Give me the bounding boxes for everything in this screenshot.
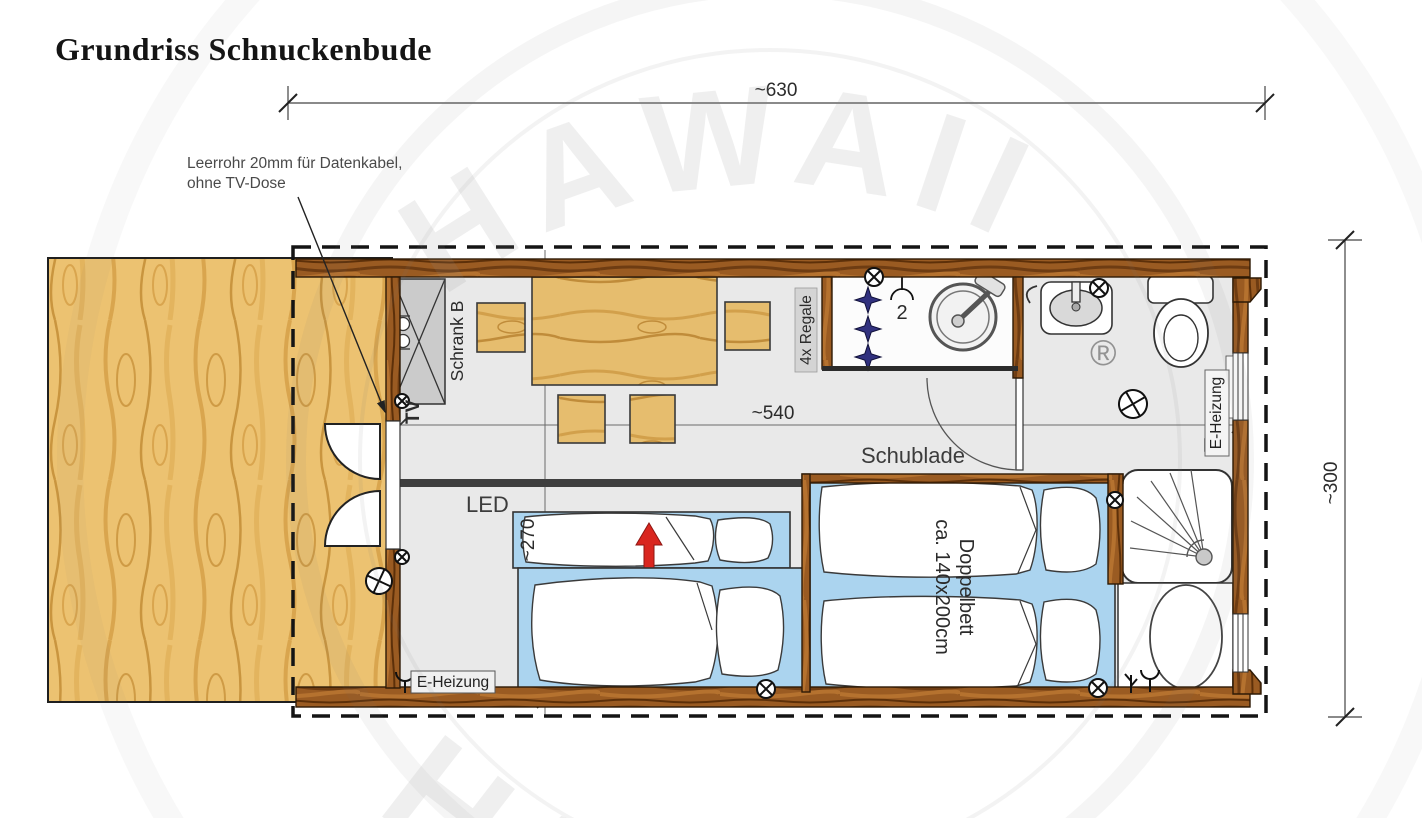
wall-stub-bottom-right: [1233, 670, 1261, 694]
closet-front-line: [822, 366, 1018, 371]
label-drawer: Schublade: [861, 443, 965, 468]
lamp-icon: [757, 680, 775, 698]
wall-closet: [822, 277, 832, 369]
dim-label-270: ~270: [518, 519, 539, 562]
duvet: [532, 578, 718, 686]
window-icon: [1233, 614, 1248, 672]
svg-text:E-Heizung: E-Heizung: [1208, 377, 1225, 449]
floorplan-page: Grundriss Schnuckenbude Leerrohr 20mm fü…: [0, 0, 1422, 818]
bed-frame-top: [802, 474, 1123, 483]
wardrobe-schrank-b: [393, 279, 445, 404]
bed-frame-left: [802, 474, 810, 692]
label-switch-2: 2: [896, 302, 907, 324]
registered-mark: ®: [1090, 332, 1117, 373]
label-led: LED: [466, 492, 509, 517]
dim-label-540: ~540: [752, 403, 795, 424]
label-doublebed-1: Doppelbett: [955, 539, 977, 636]
duvet: [819, 482, 1037, 577]
drain-icon: [1196, 549, 1212, 565]
led-wall-strip: [400, 479, 807, 487]
label-tv: TV: [403, 399, 424, 424]
star-icons: [855, 287, 881, 370]
wall-bath-partition: [1013, 277, 1023, 378]
bed-frame-right: [1108, 474, 1123, 584]
annotation-line1: Leerrohr 20mm für Datenkabel,: [187, 155, 402, 172]
stool: [630, 395, 675, 443]
duvet: [821, 596, 1037, 688]
shower: [1122, 470, 1232, 583]
pillow: [1040, 599, 1100, 682]
pillow: [716, 587, 783, 676]
pillow: [1040, 487, 1100, 572]
floorplan-drawing: Grundriss Schnuckenbude Leerrohr 20mm fü…: [0, 0, 1422, 818]
svg-text:HAWAII: HAWAII: [355, 703, 1028, 818]
lamp-icon: [1090, 279, 1108, 297]
duvet: [523, 513, 714, 566]
pillow: [715, 518, 772, 563]
single-bed-lower: [518, 568, 805, 692]
wall-stub-top-right: [1233, 278, 1261, 302]
annotation-line2: ohne TV-Dose: [187, 175, 286, 192]
stool: [477, 303, 525, 352]
stool: [725, 302, 770, 350]
desk-table: [532, 277, 717, 385]
label-doublebed-2: ca. 140x200cm: [931, 519, 953, 655]
stool: [558, 395, 605, 443]
page-title: Grundriss Schnuckenbude: [55, 31, 432, 67]
label-shelves: 4x Regale: [798, 295, 815, 365]
heater-label-right: E-Heizung: [1205, 370, 1229, 456]
lamp-icon: [865, 268, 883, 286]
dim-label-300: ~300: [1321, 462, 1342, 505]
lamp-icon: [395, 550, 409, 564]
lamp-icon: [1107, 492, 1123, 508]
single-bed-upper: [513, 512, 790, 568]
